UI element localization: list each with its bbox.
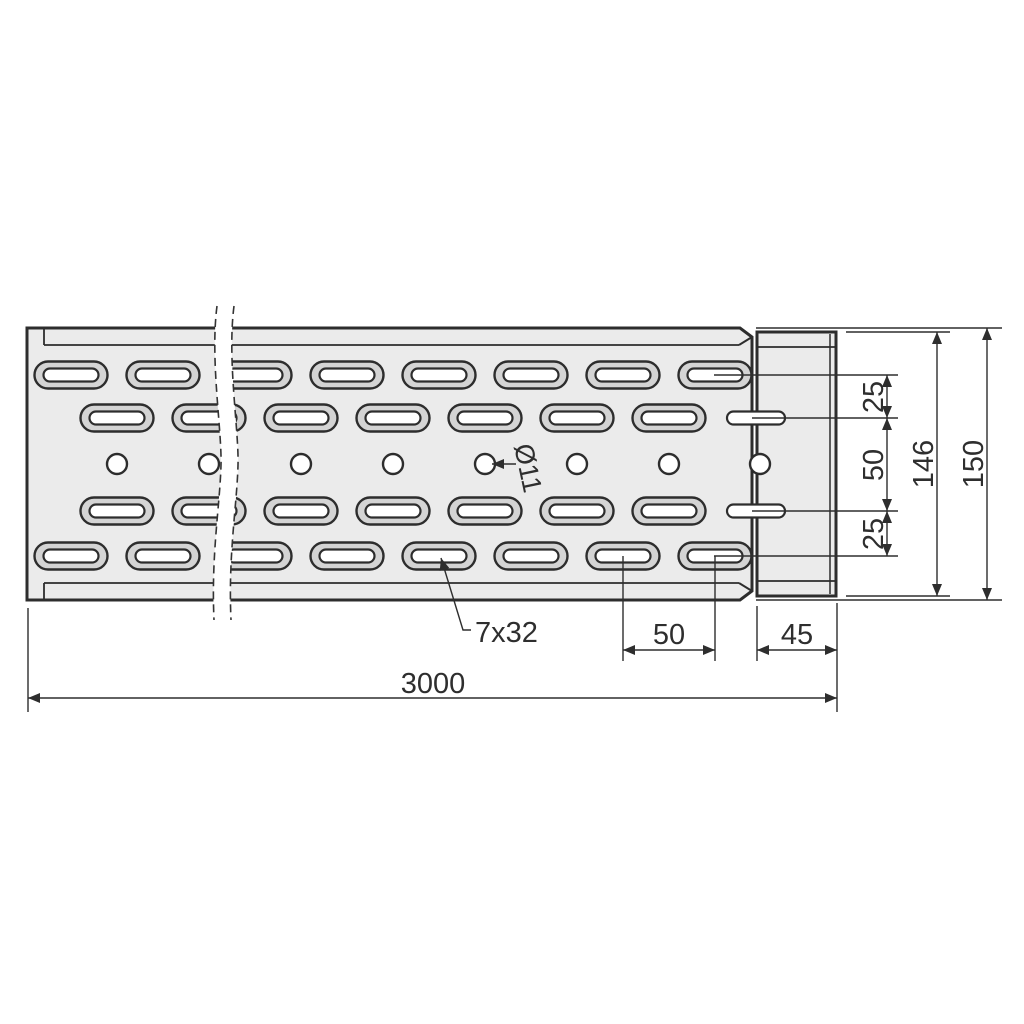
slot <box>495 362 568 389</box>
slot <box>403 362 476 389</box>
slot <box>81 498 154 525</box>
dim-text-25-bottom: 25 <box>858 518 890 550</box>
dim-text-50-right: 50 <box>858 449 890 481</box>
hole <box>659 454 679 474</box>
dim-text-146: 146 <box>908 440 940 488</box>
slot <box>403 543 476 570</box>
dim-text-45: 45 <box>781 619 813 651</box>
hole <box>750 454 770 474</box>
dim-text-25-top: 25 <box>858 381 890 413</box>
slot <box>35 543 108 570</box>
dim-text-50-bottom: 50 <box>653 619 685 651</box>
hole <box>199 454 219 474</box>
slot <box>633 405 706 432</box>
slot <box>587 362 660 389</box>
technical-drawing: 25 50 25 146 150 50 45 3000 Ø11 <box>0 0 1024 1024</box>
hole <box>567 454 587 474</box>
slot <box>265 405 338 432</box>
slot <box>633 498 706 525</box>
hole <box>291 454 311 474</box>
slot <box>541 498 614 525</box>
dim-text-150: 150 <box>958 440 990 488</box>
slot <box>449 498 522 525</box>
slot <box>127 543 200 570</box>
dim-text-3000: 3000 <box>401 668 466 700</box>
slot <box>81 405 154 432</box>
hole <box>107 454 127 474</box>
slot <box>311 543 384 570</box>
slot <box>357 498 430 525</box>
slot <box>127 362 200 389</box>
slot <box>541 405 614 432</box>
slot <box>495 543 568 570</box>
slot <box>265 498 338 525</box>
slot <box>35 362 108 389</box>
callout-text-slot: 7x32 <box>475 617 538 649</box>
slot <box>449 405 522 432</box>
slot <box>357 405 430 432</box>
hole <box>383 454 403 474</box>
slot <box>311 362 384 389</box>
